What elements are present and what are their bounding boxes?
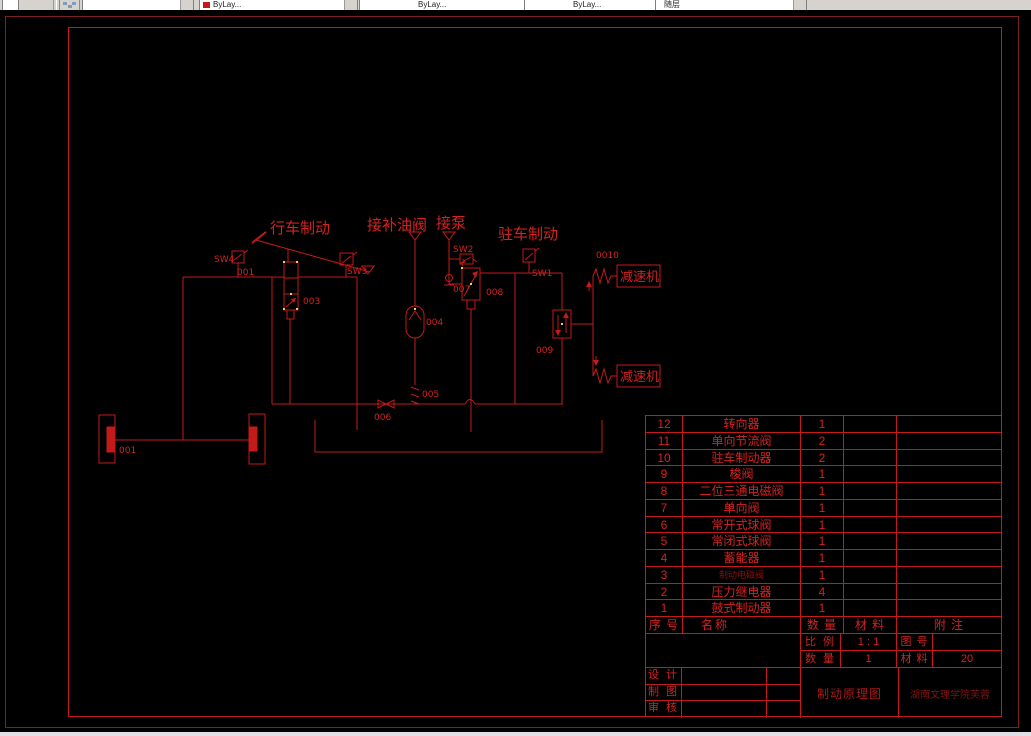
chevron-down-icon[interactable]: [793, 0, 806, 10]
header-no: 序 号: [646, 617, 683, 633]
table-row: 5 常闭式球阀 1: [646, 533, 1001, 550]
part-qty: 1: [801, 600, 844, 616]
tag-sw2: SW2: [453, 245, 473, 255]
part-material: [844, 416, 897, 432]
valve-005: [411, 387, 419, 404]
part-note: [897, 416, 1001, 432]
color-value: ByLay...: [213, 0, 241, 9]
grip-dot: [561, 323, 563, 325]
draft-date-cell: [767, 685, 800, 701]
arrowhead: [586, 281, 592, 287]
part-material: [844, 600, 897, 616]
part-name: 梭阀: [683, 466, 801, 482]
part-name: 常闭式球阀: [683, 533, 801, 549]
part-name: 驻车制动器: [683, 450, 801, 466]
dwgno-label: 图 号: [897, 634, 933, 650]
design-date-cell: [767, 668, 800, 684]
parts-header-row: 序 号 名称 数 量 材 料 附 注: [646, 617, 1001, 634]
layers-icon: [63, 2, 67, 5]
part-no: 1: [646, 600, 683, 616]
table-row: 4 蓄能器 1: [646, 550, 1001, 567]
drawing-title: 制动原理图: [801, 668, 899, 718]
layers-icon: [72, 2, 76, 5]
part-no: 5: [646, 533, 683, 549]
scale-row: 比 例 1 : 1 图 号: [801, 634, 1001, 651]
part-material: [844, 500, 897, 516]
label-supply-valve: 接补油阀: [367, 216, 427, 234]
layer-combo[interactable]: [82, 0, 194, 10]
qty-value: 1: [841, 651, 897, 667]
part-qty: 2: [801, 450, 844, 466]
table-row: 9 梭阀 1: [646, 466, 1001, 483]
chevron-down-icon[interactable]: [180, 0, 193, 10]
table-row: 10 驻车制动器 2: [646, 450, 1001, 467]
part-qty: 4: [801, 584, 844, 600]
draft-label: 制 图: [646, 685, 682, 701]
properties-toolbar: ByLay... ByLay... ByLay... 随层: [0, 0, 1031, 10]
title-block: 12 转向器 1 11 单向节流阀 2 10 驻车制动器 2 9 梭阀 1 8 …: [645, 415, 1002, 717]
part-name: 转向器: [683, 416, 801, 432]
layers-icon: [68, 5, 72, 8]
header-material: 材 料: [844, 617, 897, 633]
master-cylinder-003: [284, 262, 298, 319]
drawing-canvas[interactable]: 行车制动 接补油阀 接泵 驻车制动 减速机 减速机 SW4 001 003 SW…: [0, 10, 1031, 732]
table-row: 3 制动电磁阀 1: [646, 567, 1001, 584]
part-no: 7: [646, 500, 683, 516]
info-blank-cell: [646, 634, 801, 667]
part-material: [844, 466, 897, 482]
qty-label: 数 量: [801, 651, 841, 667]
label-service-brake: 行车制动: [270, 219, 330, 237]
part-qty: 1: [801, 550, 844, 566]
autocad-window: ByLay... ByLay... ByLay... 随层: [0, 0, 1031, 736]
part-name: 单向节流阀: [683, 433, 801, 449]
tag-008: 008: [486, 288, 503, 298]
part-no: 3: [646, 567, 683, 583]
part-no: 12: [646, 416, 683, 432]
linetype-value: ByLay...: [418, 0, 446, 9]
header-note: 附 注: [897, 617, 1001, 633]
grip-dot: [290, 293, 292, 295]
part-material: [844, 483, 897, 499]
plotstyle-value: 随层: [664, 0, 680, 9]
part-name: 鼓式制动器: [683, 600, 801, 616]
plotstyle-combo[interactable]: 随层: [655, 0, 807, 10]
chevron-down-icon[interactable]: [344, 0, 357, 10]
part-name: 压力继电器: [683, 584, 801, 600]
part-note: [897, 466, 1001, 482]
grip-dot: [283, 261, 285, 263]
parking-line: [480, 262, 562, 404]
part-note: [897, 483, 1001, 499]
part-name: 制动电磁阀: [683, 567, 801, 583]
design-name-cell: [682, 668, 767, 684]
part-note: [897, 517, 1001, 533]
header-qty: 数 量: [801, 617, 844, 633]
part-qty: 1: [801, 567, 844, 583]
draft-row: 制 图: [646, 685, 800, 702]
part-no: 2: [646, 584, 683, 600]
part-name: 常开式球阀: [683, 517, 801, 533]
bottom-strip: [0, 732, 1031, 736]
part-name: 单向阀: [683, 500, 801, 516]
hydraulic-lines: [115, 277, 357, 440]
part-material: [844, 517, 897, 533]
part-no: 8: [646, 483, 683, 499]
part-qty: 1: [801, 416, 844, 432]
color-swatch: [203, 2, 210, 8]
design-label: 设 计: [646, 668, 682, 684]
part-qty: 1: [801, 483, 844, 499]
info-section: 比 例 1 : 1 图 号 数 量 1 材 料 20: [646, 634, 1001, 668]
grip-dot: [414, 308, 416, 310]
part-no: 10: [646, 450, 683, 466]
part-no: 11: [646, 433, 683, 449]
part-material: [844, 450, 897, 466]
table-row: 2 压力继电器 4: [646, 584, 1001, 601]
qty-row: 数 量 1 材 料 20: [801, 651, 1001, 667]
part-qty: 1: [801, 517, 844, 533]
tag-009: 009: [536, 346, 553, 356]
lineweight-value: ByLay...: [573, 0, 601, 9]
pump-port-symbol: [443, 232, 455, 240]
pressure-switch-sw1: [523, 248, 539, 262]
part-no: 9: [646, 466, 683, 482]
check-name-cell: [682, 701, 767, 718]
tag-003: 003: [303, 297, 320, 307]
part-note: [897, 533, 1001, 549]
scale-label: 比 例: [801, 634, 841, 650]
material-label: 材 料: [897, 651, 933, 667]
tag-001: 001: [237, 268, 254, 278]
organization-name: 湖南文理学院芙蓉: [899, 668, 1001, 718]
layers-button[interactable]: [59, 0, 80, 10]
part-qty: 2: [801, 433, 844, 449]
part-material: [844, 433, 897, 449]
switch-stubs: [238, 263, 346, 277]
part-qty: 1: [801, 466, 844, 482]
table-row: 6 常开式球阀 1: [646, 517, 1001, 534]
parts-rows: 12 转向器 1 11 单向节流阀 2 10 驻车制动器 2 9 梭阀 1 8 …: [646, 416, 1001, 617]
header-name: 名称: [683, 617, 801, 633]
tank-bracket: [315, 420, 602, 452]
grip-dot: [296, 261, 298, 263]
signature-section: 设 计 制 图 审 核 制动原理图: [646, 668, 1001, 718]
part-no: 6: [646, 517, 683, 533]
material-value: 20: [933, 651, 1001, 667]
grip-dot: [283, 308, 285, 310]
dwgno-value: [933, 634, 1001, 650]
pressure-switch-sw3: [340, 252, 357, 265]
label-reducer-top: 减速机: [620, 270, 659, 285]
arrowhead: [555, 330, 561, 336]
label-reducer-bottom: 减速机: [620, 370, 659, 385]
table-row: 7 单向阀 1: [646, 500, 1001, 517]
tag-sw1: SW1: [532, 269, 552, 279]
drum-brake-left: [99, 415, 115, 463]
table-row: 8 二位三通电磁阀 1: [646, 483, 1001, 500]
part-no: 4: [646, 550, 683, 566]
check-date-cell: [767, 701, 800, 718]
toolbar-cell: [2, 0, 19, 10]
table-row: 1 鼓式制动器 1: [646, 600, 1001, 617]
part-note: [897, 433, 1001, 449]
part-material: [844, 533, 897, 549]
part-material: [844, 550, 897, 566]
scale-value: 1 : 1: [841, 634, 897, 650]
part-qty: 1: [801, 533, 844, 549]
part-note: [897, 500, 1001, 516]
grip-dot: [461, 267, 463, 269]
tag-sw4: SW4: [214, 255, 235, 265]
accumulator-004: [406, 306, 424, 338]
tag-005: 005: [422, 390, 439, 400]
pressure-switch-sw4: [232, 250, 248, 263]
part-note: [897, 600, 1001, 616]
tag-007: 007: [453, 285, 470, 295]
tag-sw3: SW3: [347, 267, 367, 277]
part-material: [844, 584, 897, 600]
arrowhead: [593, 360, 599, 366]
part-name: 蓄能器: [683, 550, 801, 566]
arrowhead: [563, 312, 569, 318]
tag-0010: 0010: [596, 251, 619, 261]
tag-004: 004: [426, 318, 443, 328]
part-note: [897, 567, 1001, 583]
color-combo[interactable]: ByLay...: [199, 0, 358, 10]
part-note: [897, 550, 1001, 566]
label-parking-brake: 驻车制动: [498, 225, 558, 243]
part-note: [897, 584, 1001, 600]
check-row: 审 核: [646, 701, 800, 718]
drum-brake-right: [249, 414, 265, 464]
table-row: 11 单向节流阀 2: [646, 433, 1001, 450]
table-row: 12 转向器 1: [646, 416, 1001, 433]
design-row: 设 计: [646, 668, 800, 685]
draft-name-cell: [682, 685, 767, 701]
part-name: 二位三通电磁阀: [683, 483, 801, 499]
grip-dot: [470, 283, 472, 285]
label-to-pump: 接泵: [436, 214, 466, 232]
part-material: [844, 567, 897, 583]
check-label: 审 核: [646, 701, 682, 718]
grip-dot: [296, 308, 298, 310]
part-qty: 1: [801, 500, 844, 516]
toolbar-separator: [53, 0, 57, 10]
tag-001-drum: 001: [119, 446, 136, 456]
tag-006: 006: [374, 413, 391, 423]
part-note: [897, 450, 1001, 466]
